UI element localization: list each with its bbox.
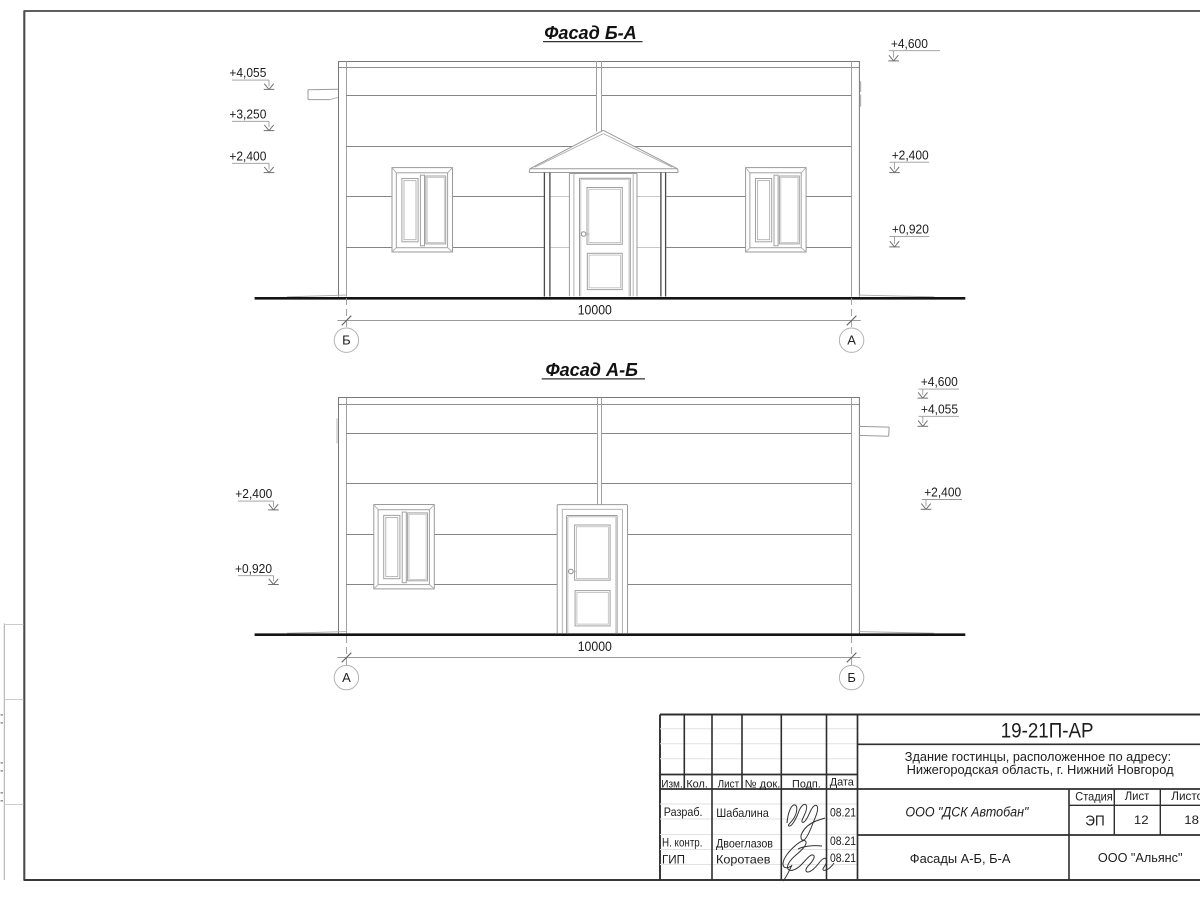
svg-text:Лист: Лист	[1125, 789, 1150, 803]
svg-text:10000: 10000	[578, 639, 613, 654]
svg-text:Разраб.: Разраб.	[664, 805, 703, 819]
svg-text:+2,400: +2,400	[892, 148, 929, 162]
svg-text:18: 18	[1184, 813, 1199, 827]
svg-text:19-21П-АР: 19-21П-АР	[1001, 720, 1094, 743]
svg-text:Лист: Лист	[718, 778, 740, 790]
svg-text:+2,400: +2,400	[924, 486, 961, 500]
svg-text:12: 12	[1134, 813, 1149, 827]
svg-text:Изм.: Изм.	[661, 778, 683, 790]
svg-text:Н. контр.: Н. контр.	[662, 836, 703, 850]
svg-text:Коротаев: Коротаев	[716, 852, 771, 866]
svg-text:ГИП: ГИП	[662, 852, 685, 866]
svg-text:+4,600: +4,600	[891, 37, 928, 51]
svg-text:+2,400: +2,400	[229, 149, 266, 163]
svg-text:+0,920: +0,920	[235, 562, 272, 576]
svg-text:Двоеглазов: Двоеглазов	[716, 837, 773, 851]
svg-text:10000: 10000	[578, 302, 613, 317]
svg-text:08.21: 08.21	[830, 806, 856, 820]
svg-text:+4,055: +4,055	[921, 402, 958, 416]
svg-text:ООО "ДСК Автобан": ООО "ДСК Автобан"	[905, 805, 1029, 820]
svg-text:ООО "Альянс": ООО "Альянс"	[1098, 850, 1183, 865]
svg-text:Фасады А-Б, Б-А: Фасады А-Б, Б-А	[910, 851, 1011, 866]
svg-text:Листов: Листов	[1171, 789, 1200, 803]
svg-text:08.21: 08.21	[830, 851, 856, 865]
svg-text:№ док.: № док.	[745, 778, 781, 790]
svg-text:Подп.: Подп.	[792, 778, 821, 790]
svg-text:Шабалина: Шабалина	[716, 806, 769, 820]
svg-text:Дата: Дата	[830, 776, 855, 788]
svg-text:Б: Б	[342, 332, 351, 347]
svg-text:+4,600: +4,600	[921, 375, 958, 389]
svg-text:+0,920: +0,920	[892, 223, 929, 237]
svg-text:08.21: 08.21	[830, 834, 856, 848]
svg-text:А: А	[342, 670, 351, 685]
svg-text:Стадия: Стадия	[1075, 790, 1112, 804]
svg-text:Кол.: Кол.	[686, 778, 708, 790]
svg-text:+4,055: +4,055	[229, 66, 266, 80]
svg-text:А: А	[847, 332, 856, 347]
svg-text:Б: Б	[847, 670, 856, 685]
svg-text:Нижегородская область, г. Нижн: Нижегородская область, г. Нижний Новгоро…	[907, 762, 1174, 777]
svg-text:+2,400: +2,400	[235, 487, 272, 501]
svg-text:ЭП: ЭП	[1085, 813, 1104, 829]
svg-text:+3,250: +3,250	[229, 107, 266, 121]
svg-text:Фасад А-Б: Фасад А-Б	[545, 359, 638, 380]
svg-text:Фасад Б-А: Фасад Б-А	[544, 22, 637, 43]
